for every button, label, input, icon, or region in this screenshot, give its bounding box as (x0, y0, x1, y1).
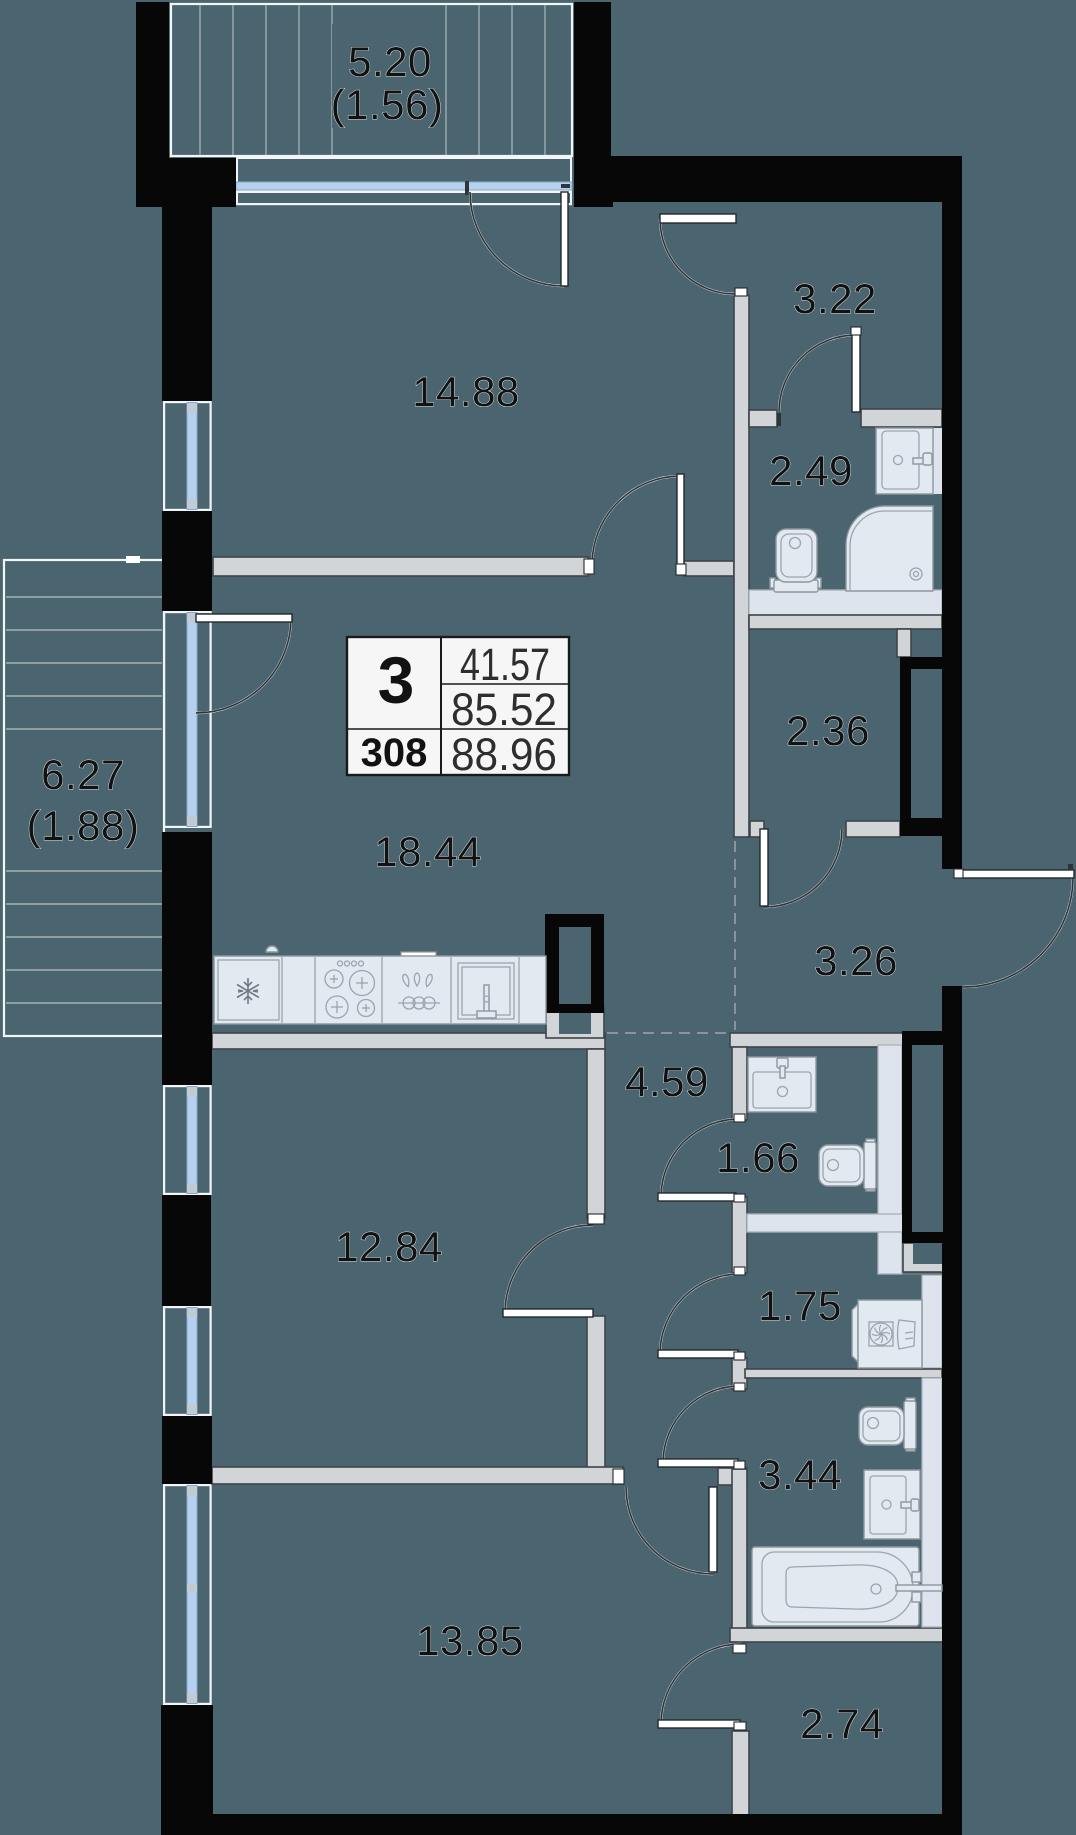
svg-text:3: 3 (378, 643, 415, 717)
svg-text:3.44: 3.44 (758, 1451, 842, 1498)
svg-text:4.59: 4.59 (625, 1058, 709, 1105)
svg-text:6.27: 6.27 (41, 751, 125, 798)
svg-text:1.75: 1.75 (758, 1282, 842, 1329)
svg-text:85.52: 85.52 (451, 684, 557, 735)
svg-text:(1.88): (1.88) (27, 802, 140, 849)
svg-text:88.96: 88.96 (451, 729, 557, 780)
svg-text:5.20: 5.20 (348, 38, 432, 85)
svg-text:18.44: 18.44 (374, 828, 482, 875)
svg-text:3.22: 3.22 (793, 275, 877, 322)
svg-text:1.66: 1.66 (716, 1134, 800, 1181)
svg-text:(1.56): (1.56) (331, 81, 444, 128)
svg-text:12.84: 12.84 (335, 1223, 443, 1270)
svg-text:14.88: 14.88 (412, 368, 520, 415)
svg-text:308: 308 (361, 731, 428, 775)
svg-text:13.85: 13.85 (416, 1617, 524, 1664)
svg-text:2.36: 2.36 (786, 707, 870, 754)
svg-text:2.74: 2.74 (800, 1700, 884, 1747)
svg-text:2.49: 2.49 (769, 447, 853, 494)
svg-text:3.26: 3.26 (814, 937, 898, 984)
svg-text:41.57: 41.57 (460, 639, 550, 690)
